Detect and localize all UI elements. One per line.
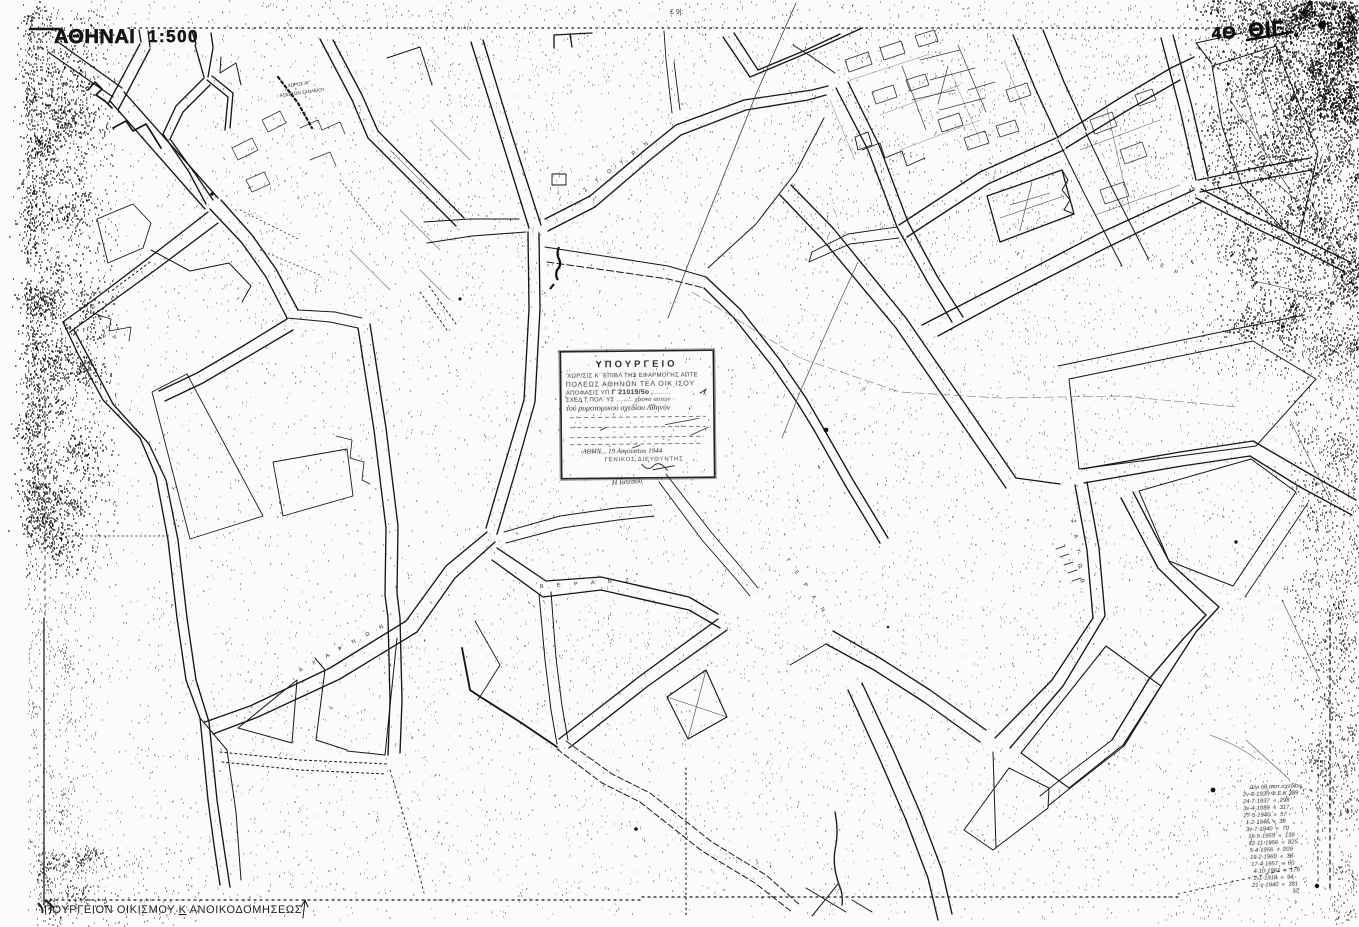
svg-text:1:500: 1:500	[148, 27, 199, 46]
svg-text:ΑΘΗΝ... 19 Αυγουστου 1944: ΑΘΗΝ... 19 Αυγουστου 1944	[581, 447, 662, 456]
svg-text:ΠΟΛΕΩΣ ΑΘΗΝΩΝ ΤΕΛ ΟΙΚ ΙΣΟΥ: ΠΟΛΕΩΣ ΑΘΗΝΩΝ ΤΕΛ ΟΙΚ ΙΣΟΥ	[566, 380, 695, 388]
svg-text:ʼΧΩΡ/ΣΙΣ Κʾ ΕΠΙΒΛ ΤΗΣ ΕΦΑΡΜΟΓΗ: ʼΧΩΡ/ΣΙΣ Κʾ ΕΠΙΒΛ ΤΗΣ ΕΦΑΡΜΟΓΗΣ ΑΠΤΕ	[566, 371, 698, 379]
svg-text:ΓΕΝΙΚΟΣ ΔΙΕΥΘΥΝΤΗΣ: ΓΕΝΙΚΟΣ ΔΙΕΥΘΥΝΤΗΣ	[604, 456, 683, 464]
svg-text:32: 32	[1292, 887, 1300, 894]
svg-text:4Θ: 4Θ	[1211, 23, 1236, 43]
svg-text:τού ρυμοτομικού σχεδίου Αθηνύν: τού ρυμοτομικού σχεδίου Αθηνύν	[566, 403, 671, 413]
svg-text:v: v	[1295, 32, 1300, 43]
svg-text:1-2-1946 « 39: 1-2-1946 « 39	[1246, 818, 1287, 826]
svg-text:ΥΠΟΥΡΓΕΙΟ: ΥΠΟΥΡΓΕΙΟ	[595, 359, 677, 371]
svg-text:£ 9|:: £ 9|:	[670, 8, 684, 16]
svg-text:2-1-1918 « 94: 2-1-1918 « 94	[1253, 874, 1295, 882]
svg-text:ΠΟΥΡΓΕΙΟΝ ΟΙΚΙΣΜΟΥ Κ ΑΝΟΙΚΟΔΟΜ: ΠΟΥΡΓΕΙΟΝ ΟΙΚΙΣΜΟΥ Κ ΑΝΟΙΚΟΔΟΜΗΣΕΩΣ	[44, 904, 302, 916]
svg-text:ΘΙΓ: ΘΙΓ	[1248, 18, 1286, 42]
svg-text:ΑΘΗΝΑΙ: ΑΘΗΝΑΙ	[54, 26, 135, 48]
